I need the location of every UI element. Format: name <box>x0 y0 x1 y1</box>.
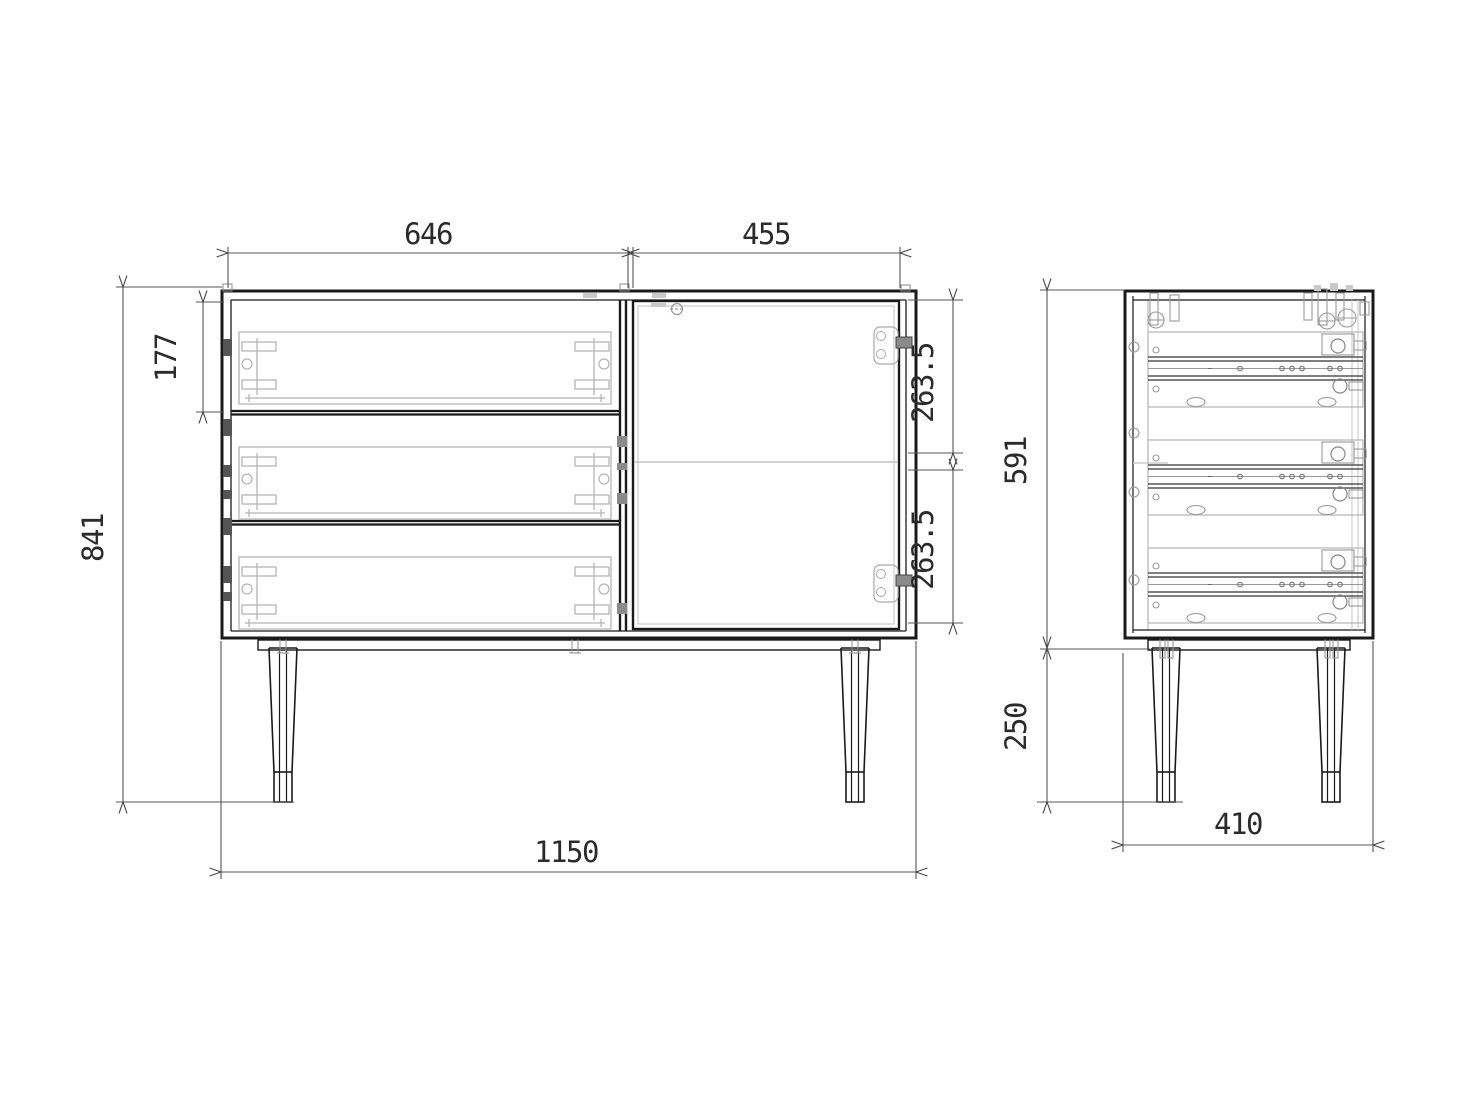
side-front-leg <box>1152 648 1180 802</box>
label-door-upper-section: 263.5 <box>906 343 940 423</box>
cad-drawing: 646 455 177 841 263.5 263.5 591 250 1150… <box>0 0 1464 1098</box>
label-drawer-section-width: 646 <box>404 217 452 251</box>
drawing-sheet: 646 455 177 841 263.5 263.5 591 250 1150… <box>0 0 1464 1098</box>
dim-door-width <box>633 247 900 288</box>
dim-drawer-section-width <box>228 247 628 288</box>
side-view <box>1125 283 1373 802</box>
label-carcass-height: 591 <box>999 437 1033 485</box>
label-overall-height: 841 <box>76 514 110 562</box>
side-legs <box>1148 632 1350 802</box>
label-depth: 410 <box>1214 807 1262 841</box>
front-view <box>222 284 916 802</box>
door-catch <box>651 302 666 307</box>
front-left-leg <box>269 648 297 802</box>
label-leg-height: 250 <box>999 703 1033 751</box>
door <box>633 301 912 629</box>
label-top-drawer-height: 177 <box>149 334 183 382</box>
front-right-leg <box>841 648 869 802</box>
side-rear-leg <box>1317 648 1345 802</box>
front-legs <box>258 633 880 802</box>
label-door-lower-section: 263.5 <box>906 510 940 590</box>
dim-top-drawer-height <box>196 302 224 412</box>
label-overall-width: 1150 <box>534 835 598 869</box>
front-leg-rail <box>258 640 880 650</box>
label-door-width: 455 <box>742 217 790 251</box>
